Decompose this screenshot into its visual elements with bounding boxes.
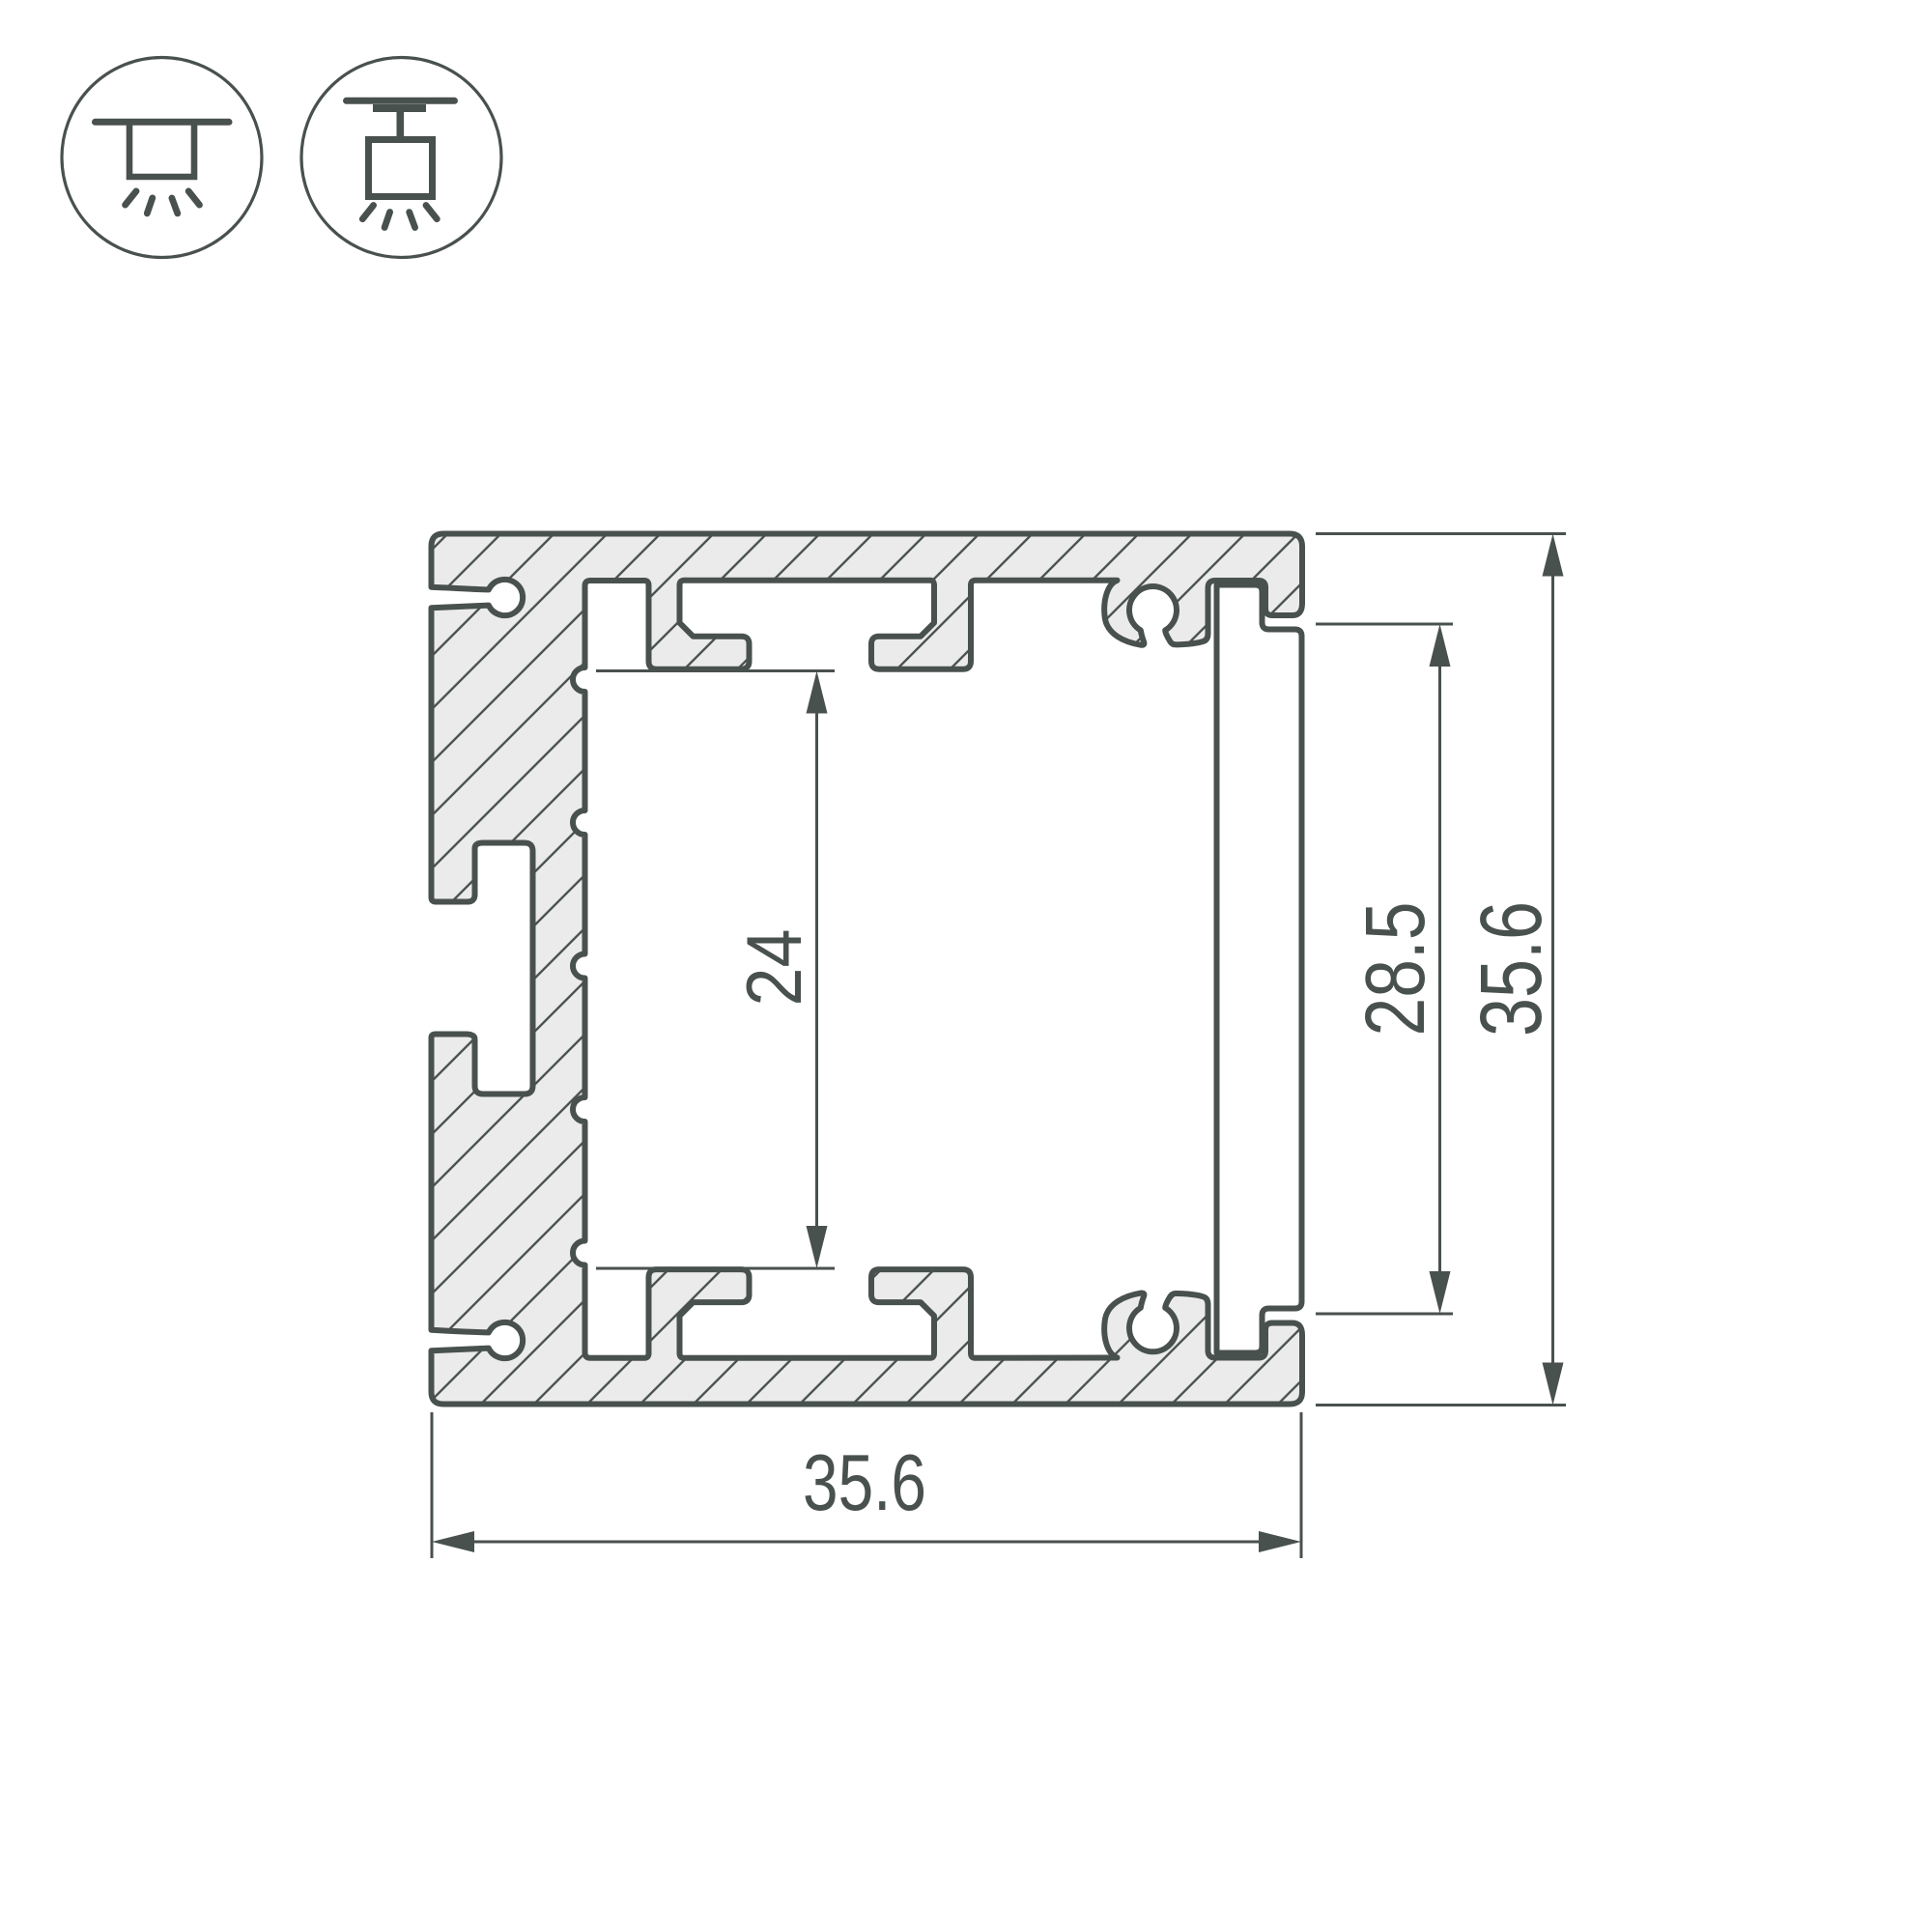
- svg-text:24: 24: [731, 929, 818, 1007]
- svg-text:35.6: 35.6: [803, 1437, 926, 1527]
- svg-text:28.5: 28.5: [1348, 902, 1442, 1037]
- svg-text:35.6: 35.6: [1463, 901, 1560, 1037]
